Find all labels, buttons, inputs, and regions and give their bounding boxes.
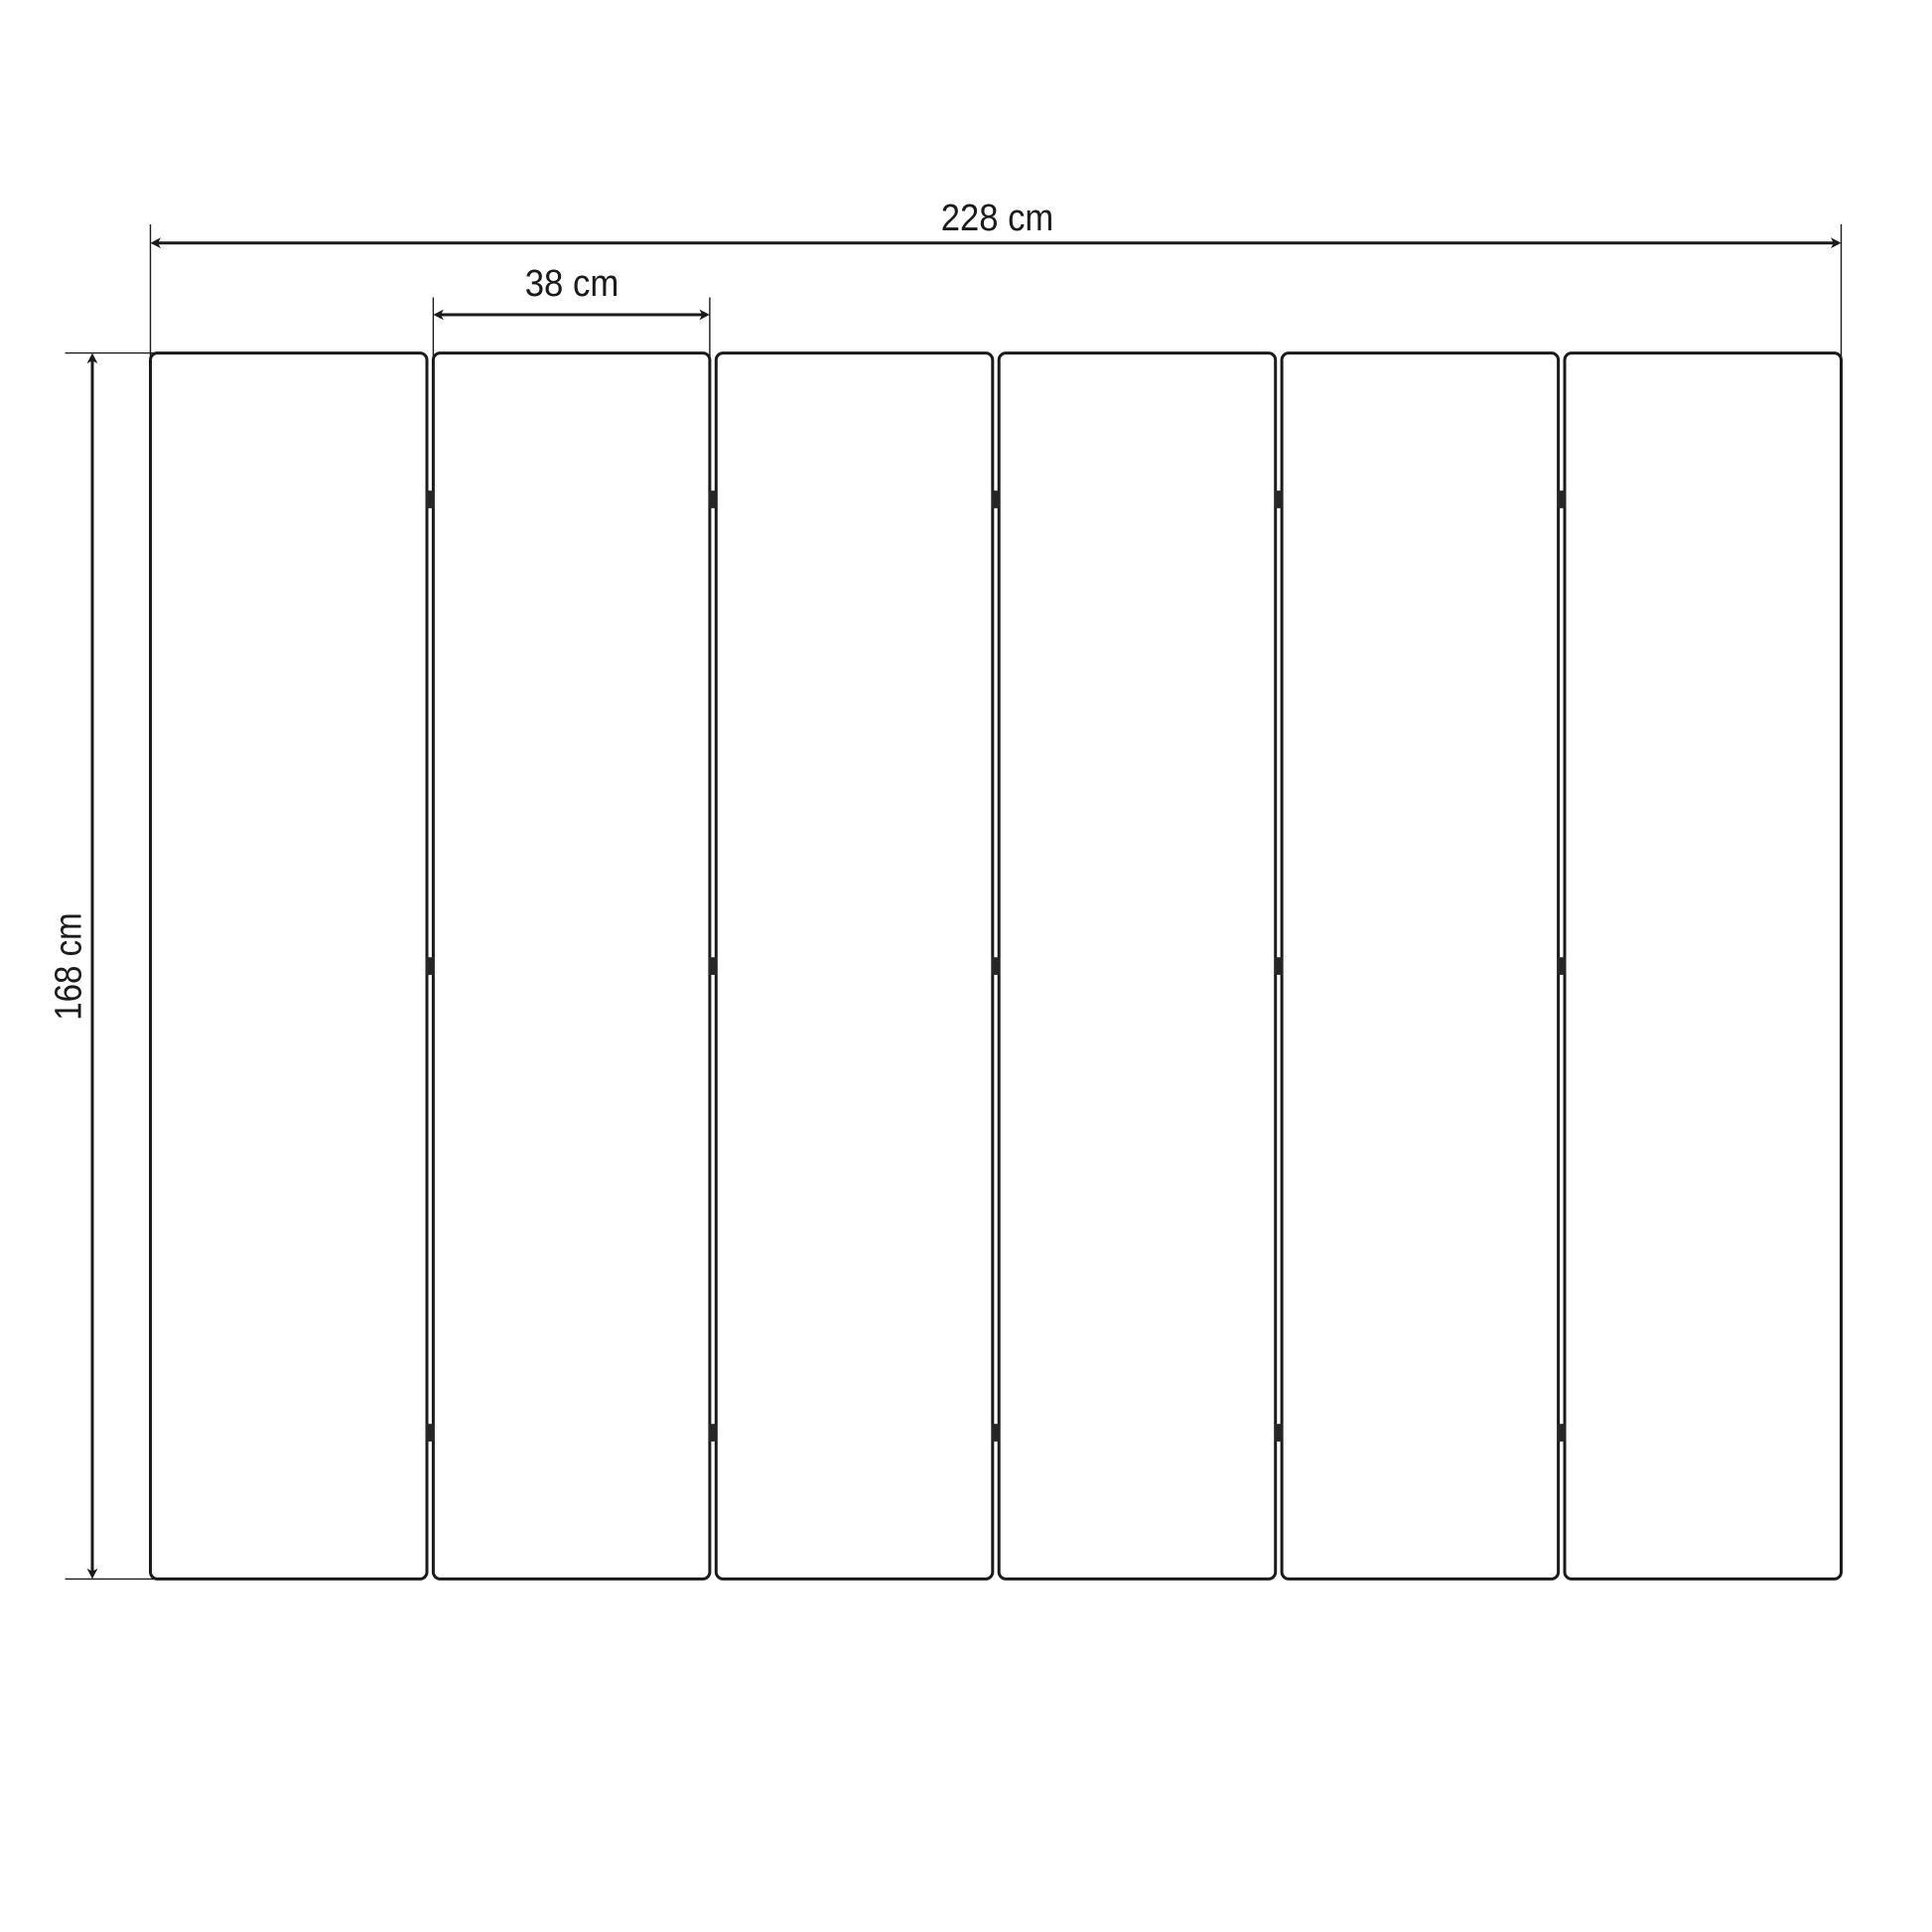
svg-text:38 cm: 38 cm bbox=[525, 263, 620, 305]
svg-text:168 cm: 168 cm bbox=[49, 912, 90, 1021]
svg-text:228 cm: 228 cm bbox=[941, 198, 1054, 239]
